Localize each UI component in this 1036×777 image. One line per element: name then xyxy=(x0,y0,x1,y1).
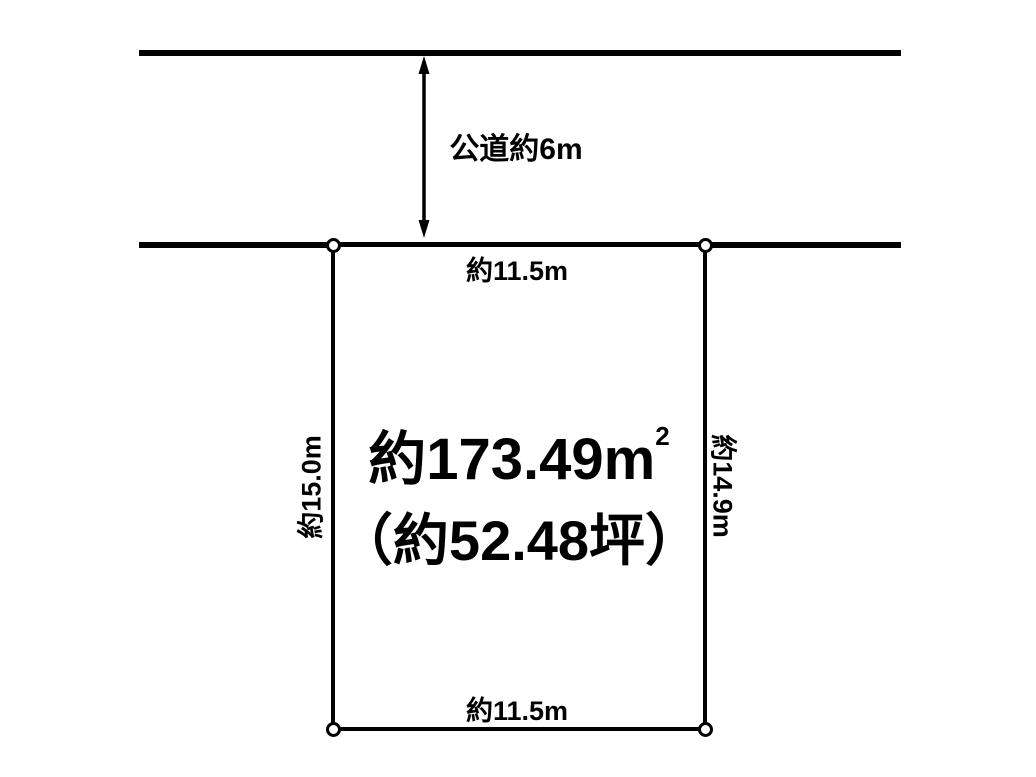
plot-area-square-meters-superscript: 2 xyxy=(655,421,669,451)
corner-marker-bottom-left xyxy=(326,722,341,737)
land-plot-diagram: 公道約6m 約11.5m 約11.5m 約15.0m 約14.9m 約173.4… xyxy=(0,0,1036,777)
plot-area-tsubo: （約52.48坪） xyxy=(331,506,707,576)
corner-marker-bottom-right xyxy=(698,722,713,737)
plot-left-length-label: 約15.0m xyxy=(290,435,329,539)
corner-marker-top-left xyxy=(326,238,341,253)
road-upper-edge-line xyxy=(139,50,901,56)
corner-marker-top-right xyxy=(698,238,713,253)
plot-area-square-meters: 約173.49m2 xyxy=(331,399,707,497)
plot-area-square-meters-value: 約173.49m xyxy=(368,427,655,492)
plot-right-length-label: 約14.9m xyxy=(706,434,745,538)
plot-top-width-label: 約11.5m xyxy=(406,249,628,288)
plot-bottom-width-label: 約11.5m xyxy=(406,689,628,728)
road-width-label: 公道約6m xyxy=(396,132,636,168)
